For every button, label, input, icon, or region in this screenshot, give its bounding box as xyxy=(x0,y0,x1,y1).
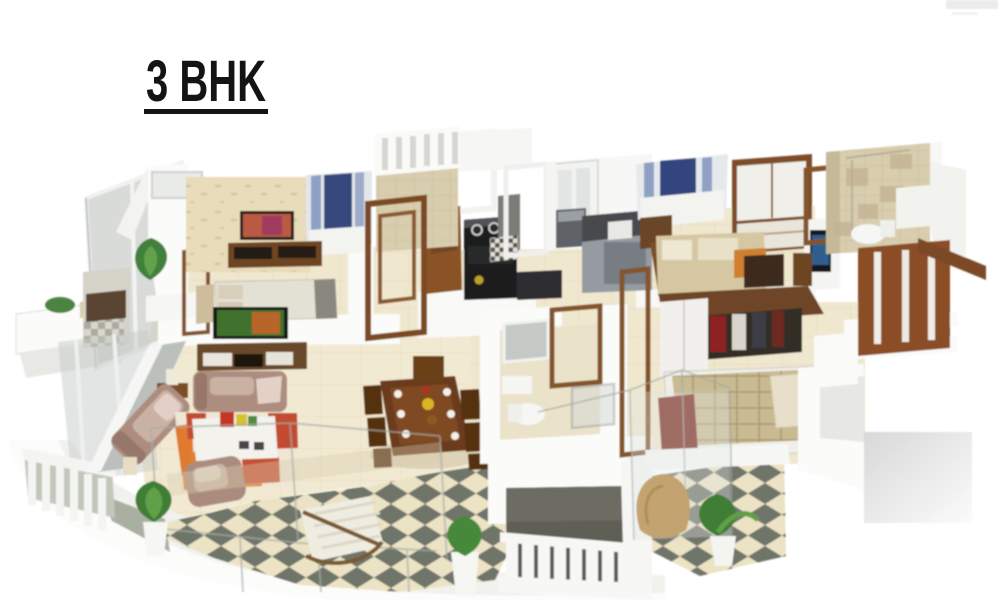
svg-text:3 BHK: 3 BHK xyxy=(146,49,266,114)
